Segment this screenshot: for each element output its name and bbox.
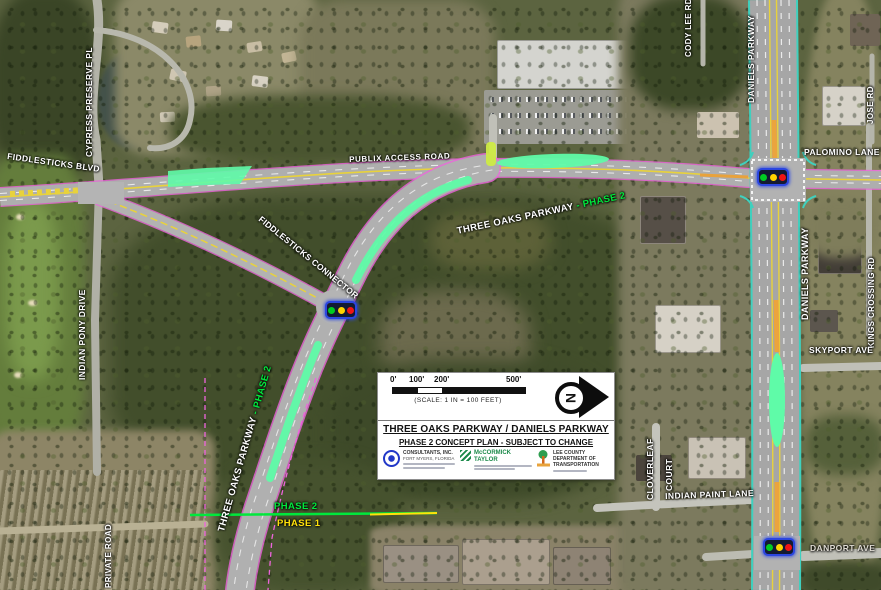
logo-line: FORT MYERS, FLORIDA bbox=[403, 456, 455, 462]
fine-print bbox=[474, 465, 532, 467]
fine-print bbox=[474, 468, 515, 470]
logo-line: TRANSPORTATION bbox=[553, 462, 609, 468]
traffic-signal-icon bbox=[325, 301, 357, 319]
road-indian-pony-drive bbox=[95, 186, 99, 472]
traffic-signal-icon bbox=[757, 168, 789, 186]
scale-bar-section: 0' 100' 200' 500' (SCALE: 1 IN = 100 FEE… bbox=[378, 373, 614, 421]
concept-plan-map: FIDDLESTICKS BLVD CYPRESS PRESERVE PL PU… bbox=[0, 0, 881, 590]
plan-title: THREE OAKS PARKWAY / DANIELS PARKWAY bbox=[378, 424, 614, 435]
phase-2-label: PHASE 2 bbox=[274, 501, 317, 512]
consultant-logo-icon bbox=[383, 450, 400, 467]
road-label-kings-crossing-rd: KINGS CROSSING RD bbox=[867, 257, 876, 348]
fine-print bbox=[403, 463, 455, 465]
road-residential-loop bbox=[96, 30, 192, 148]
road-label-jose-rd: JOSE RD bbox=[866, 86, 875, 124]
orange-median bbox=[700, 175, 748, 177]
north-arrow: N bbox=[553, 376, 609, 418]
logo-lee-county: LEE COUNTY DEPARTMENT OF TRANSPORTATION bbox=[537, 450, 609, 473]
plan-subtitle: PHASE 2 CONCEPT PLAN - SUBJECT TO CHANGE bbox=[378, 438, 614, 447]
road-daniels-parkway bbox=[757, 0, 792, 590]
fine-print bbox=[553, 470, 587, 472]
intersection-fiddlesticks bbox=[78, 182, 124, 204]
road-label-daniels-parkway-mid: DANIELS PARKWAY bbox=[800, 227, 810, 320]
road-label-skyport-ave: SKYPORT AVE bbox=[809, 345, 873, 355]
road-label-cypress-preserve-pl: CYPRESS PRESERVE PL bbox=[84, 47, 94, 157]
road-label-court: COURT bbox=[664, 459, 674, 491]
scale-tick: 0' bbox=[390, 375, 396, 384]
logo-mccormick-taylor: McCORMICK TAYLOR bbox=[460, 450, 532, 472]
logo-consultant: CONSULTANTS, INC. FORT MYERS, FLORIDA bbox=[383, 450, 455, 470]
mccormick-taylor-logo-icon bbox=[460, 450, 471, 461]
scale-bar bbox=[392, 387, 526, 394]
phase2-daniels-median bbox=[769, 353, 785, 447]
road-label-cloverleaf: CLOVERLEAF bbox=[645, 438, 655, 500]
logo-line: TAYLOR bbox=[474, 457, 532, 464]
traffic-signal-icon bbox=[763, 538, 795, 556]
road-skyport-ave bbox=[803, 366, 881, 368]
road-farm-access bbox=[0, 524, 205, 531]
phase-1-label: PHASE 1 bbox=[277, 518, 320, 529]
driveway-highlight bbox=[486, 142, 496, 166]
lee-county-logo-icon bbox=[537, 450, 550, 467]
road-danport-ave-west bbox=[706, 554, 753, 557]
orange-turn-lane bbox=[776, 300, 777, 352]
road-label-palomino-lane: PALOMINO LANE bbox=[804, 147, 880, 157]
road-label-cody-lee-rd: CODY LEE RD bbox=[684, 0, 693, 57]
road-label-danport-ave: DANPORT AVE bbox=[810, 543, 875, 553]
scale-note: (SCALE: 1 IN = 100 FEET) bbox=[378, 397, 538, 404]
scale-tick: 200' bbox=[434, 375, 449, 384]
median-hatching bbox=[10, 190, 86, 194]
fine-print bbox=[403, 467, 445, 469]
road-indian-paint-lane bbox=[597, 500, 752, 508]
north-arrow-circle: N bbox=[555, 382, 587, 414]
road-label-indian-pony-drive: INDIAN PONY DRIVE bbox=[77, 289, 87, 380]
scale-tick: 100' bbox=[409, 375, 424, 384]
scale-tick: 500' bbox=[506, 375, 521, 384]
title-block: 0' 100' 200' 500' (SCALE: 1 IN = 100 FEE… bbox=[377, 372, 615, 480]
intersections bbox=[78, 152, 816, 570]
consultant-logos: CONSULTANTS, INC. FORT MYERS, FLORIDA Mc… bbox=[378, 447, 614, 473]
road-label-daniels-parkway-north: DANIELS PARKWAY bbox=[746, 15, 756, 103]
road-label-private-road: PRIVATE ROAD bbox=[104, 524, 113, 588]
north-label: N bbox=[563, 393, 579, 403]
road-danport-ave-east bbox=[803, 553, 881, 556]
logo-line: LEE COUNTY DEPARTMENT OF bbox=[553, 450, 609, 462]
